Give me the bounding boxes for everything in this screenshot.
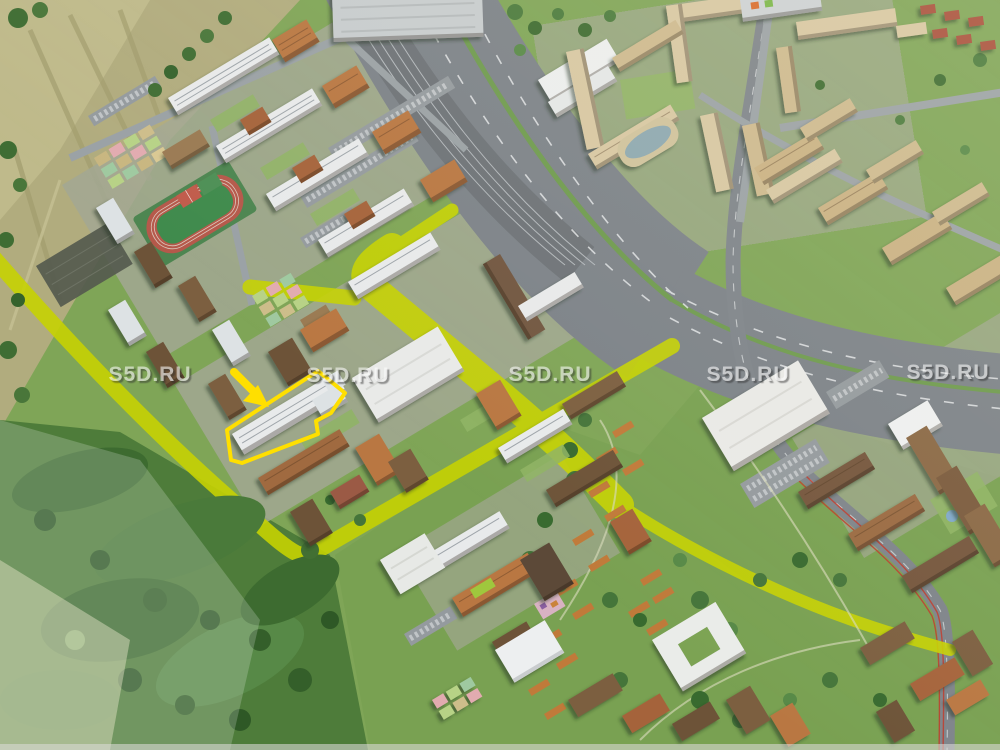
watermark: S5D.RU [306, 364, 389, 387]
watermark: S5D.RU [906, 361, 989, 384]
image-edge-strip [0, 744, 1000, 750]
watermark: S5D.RU [508, 363, 591, 386]
aerial-render: S5D.RU S5D.RU S5D.RU S5D.RU S5D.RU [0, 0, 1000, 750]
watermark: S5D.RU [706, 363, 789, 386]
watermark: S5D.RU [108, 363, 191, 386]
